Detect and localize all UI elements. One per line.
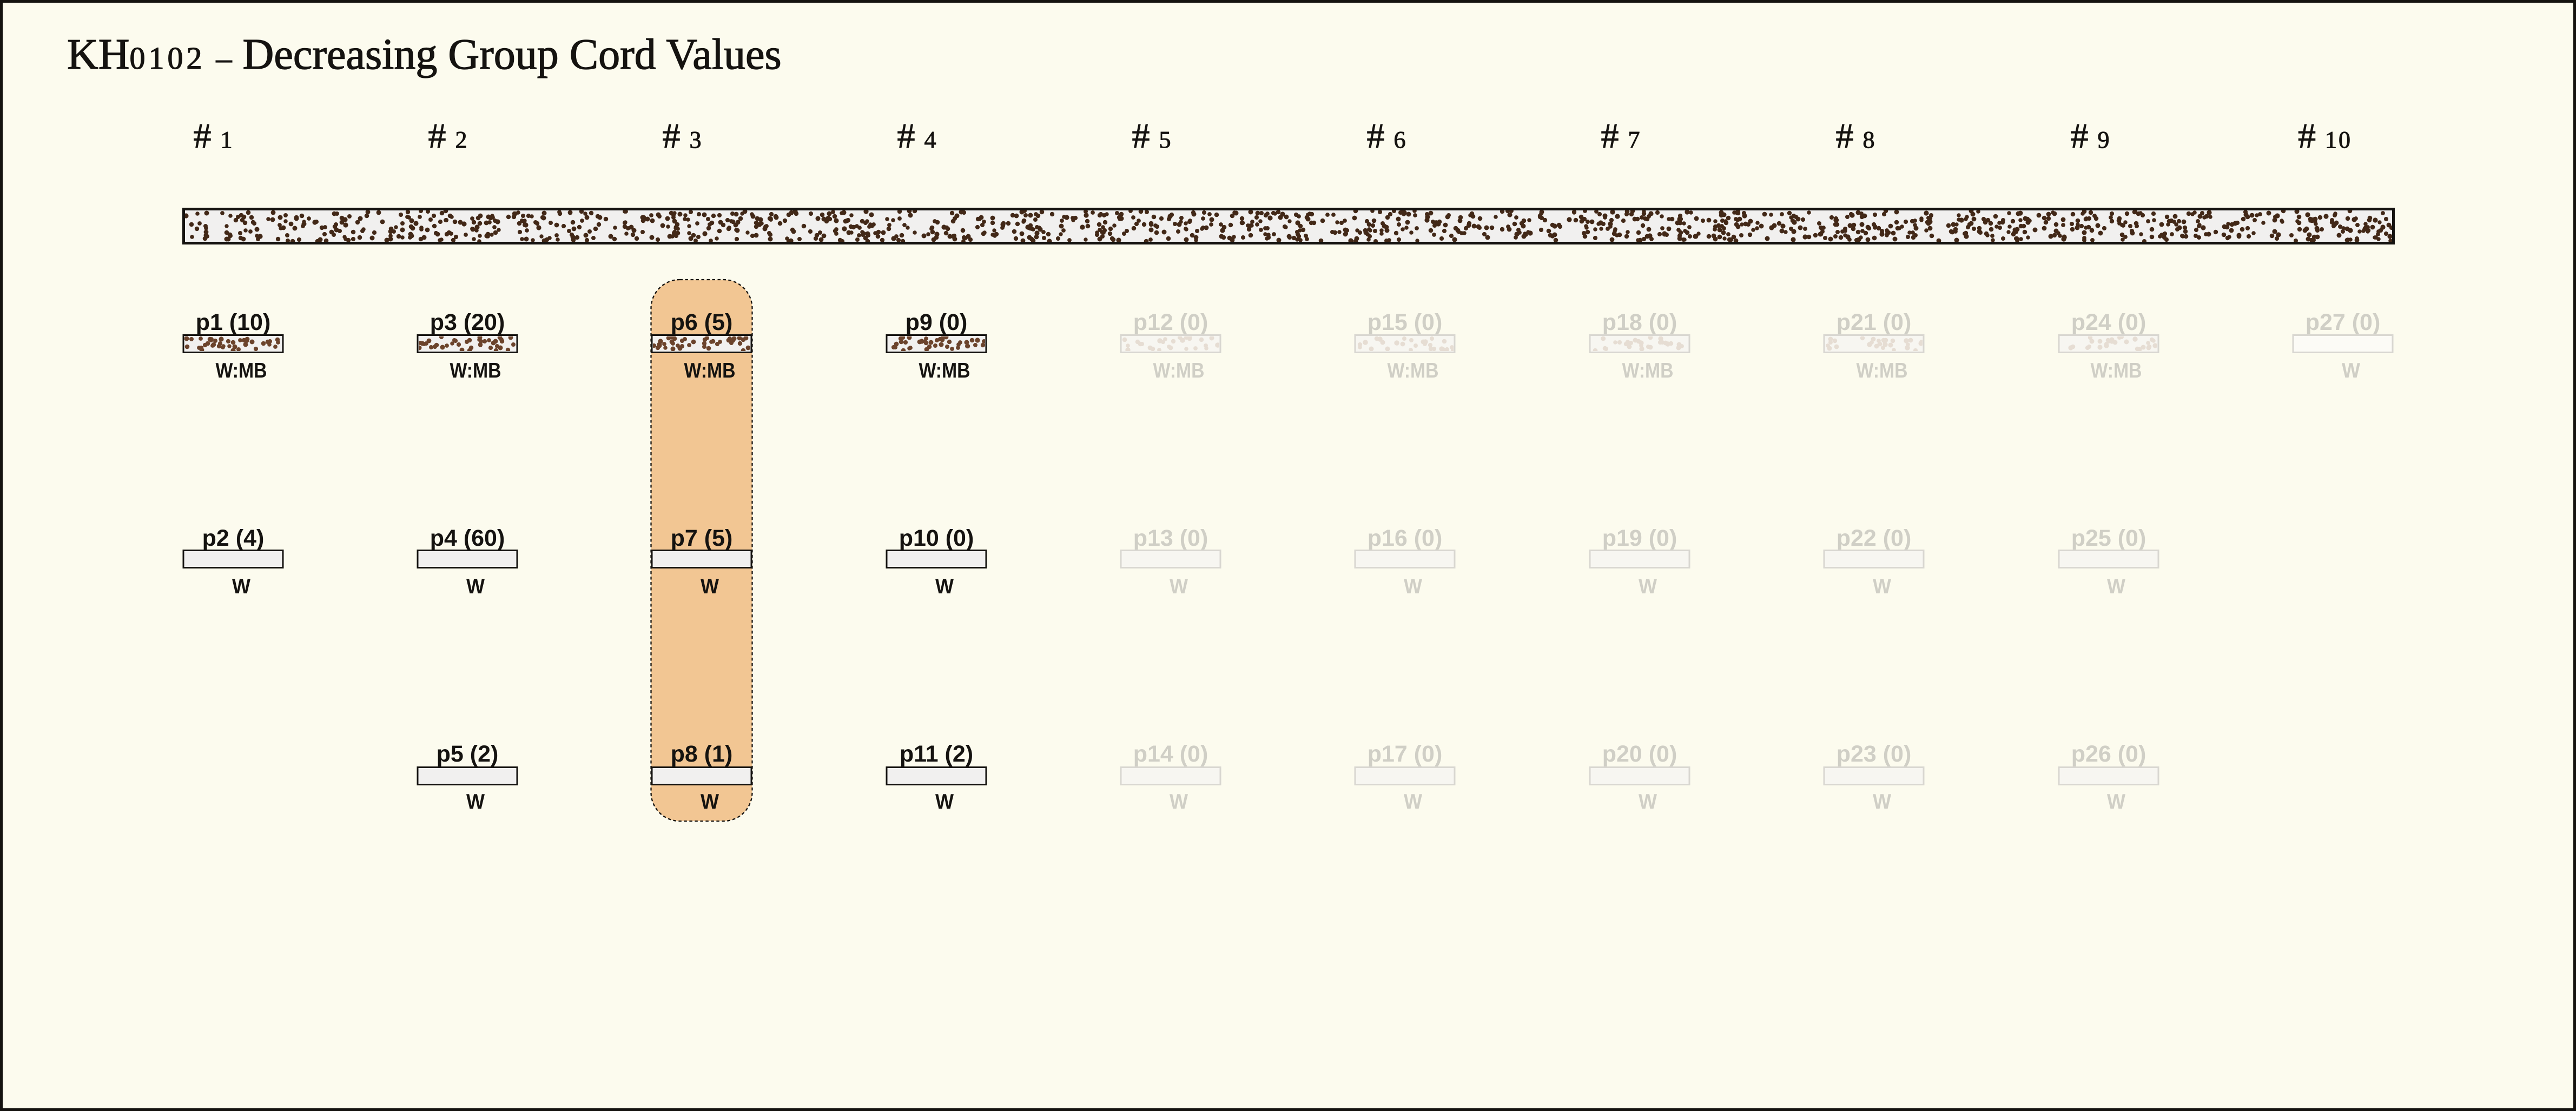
svg-text:W: W — [935, 790, 954, 814]
svg-text:W:MB: W:MB — [450, 359, 501, 382]
svg-text:p9 (0): p9 (0) — [906, 309, 968, 335]
svg-text:p19 (0): p19 (0) — [1602, 525, 1677, 551]
svg-text:W: W — [466, 575, 485, 598]
svg-text:p2 (4): p2 (4) — [202, 525, 265, 551]
svg-text:W:MB: W:MB — [1388, 359, 1439, 382]
svg-text:W:MB: W:MB — [684, 359, 736, 382]
svg-text:p5 (2): p5 (2) — [437, 741, 499, 767]
svg-text:p12 (0): p12 (0) — [1133, 309, 1208, 335]
svg-text:p11 (2): p11 (2) — [900, 741, 973, 767]
svg-text:W: W — [1404, 790, 1422, 814]
svg-text:W:MB: W:MB — [1857, 359, 1908, 382]
svg-text:W: W — [1170, 790, 1188, 814]
svg-text:p21 (0): p21 (0) — [1837, 309, 1912, 335]
svg-text:p26 (0): p26 (0) — [2071, 741, 2146, 767]
svg-text:W:MB: W:MB — [919, 359, 970, 382]
svg-text:W: W — [1404, 575, 1422, 598]
svg-text:p17 (0): p17 (0) — [1368, 741, 1443, 767]
svg-text:p8 (1): p8 (1) — [671, 741, 733, 767]
svg-text:p20 (0): p20 (0) — [1602, 741, 1677, 767]
svg-text:p3 (20): p3 (20) — [430, 309, 505, 335]
svg-text:p27 (0): p27 (0) — [2306, 309, 2381, 335]
svg-text:W:MB: W:MB — [216, 359, 267, 382]
svg-text:W: W — [1639, 575, 1657, 598]
svg-text:p13 (0): p13 (0) — [1133, 525, 1208, 551]
svg-text:W: W — [466, 790, 485, 814]
svg-text:p25 (0): p25 (0) — [2071, 525, 2146, 551]
svg-text:p6 (5): p6 (5) — [671, 309, 733, 335]
svg-text:W:MB: W:MB — [1622, 359, 1674, 382]
svg-text:p10 (0): p10 (0) — [899, 525, 974, 551]
svg-text:p23 (0): p23 (0) — [1837, 741, 1912, 767]
svg-text:W: W — [1639, 790, 1657, 814]
svg-text:W: W — [1170, 575, 1188, 598]
svg-text:p15 (0): p15 (0) — [1368, 309, 1443, 335]
svg-text:p7 (5): p7 (5) — [671, 525, 733, 551]
svg-text:p24 (0): p24 (0) — [2071, 309, 2146, 335]
svg-text:W: W — [2107, 790, 2125, 814]
svg-text:W:MB: W:MB — [2091, 359, 2142, 382]
svg-text:W: W — [2342, 359, 2360, 382]
svg-text:W: W — [1873, 575, 1891, 598]
svg-text:p22 (0): p22 (0) — [1837, 525, 1912, 551]
svg-text:W: W — [935, 575, 954, 598]
svg-text:p1 (10): p1 (10) — [196, 309, 271, 335]
svg-text:W: W — [701, 790, 719, 814]
svg-text:p18 (0): p18 (0) — [1602, 309, 1677, 335]
svg-text:W: W — [232, 575, 250, 598]
svg-text:W: W — [1873, 790, 1891, 814]
svg-text:W: W — [701, 575, 719, 598]
svg-text:W: W — [2107, 575, 2125, 598]
svg-text:p4 (60): p4 (60) — [430, 525, 505, 551]
svg-text:p14 (0): p14 (0) — [1133, 741, 1208, 767]
svg-text:W:MB: W:MB — [1153, 359, 1205, 382]
svg-text:p16 (0): p16 (0) — [1368, 525, 1443, 551]
